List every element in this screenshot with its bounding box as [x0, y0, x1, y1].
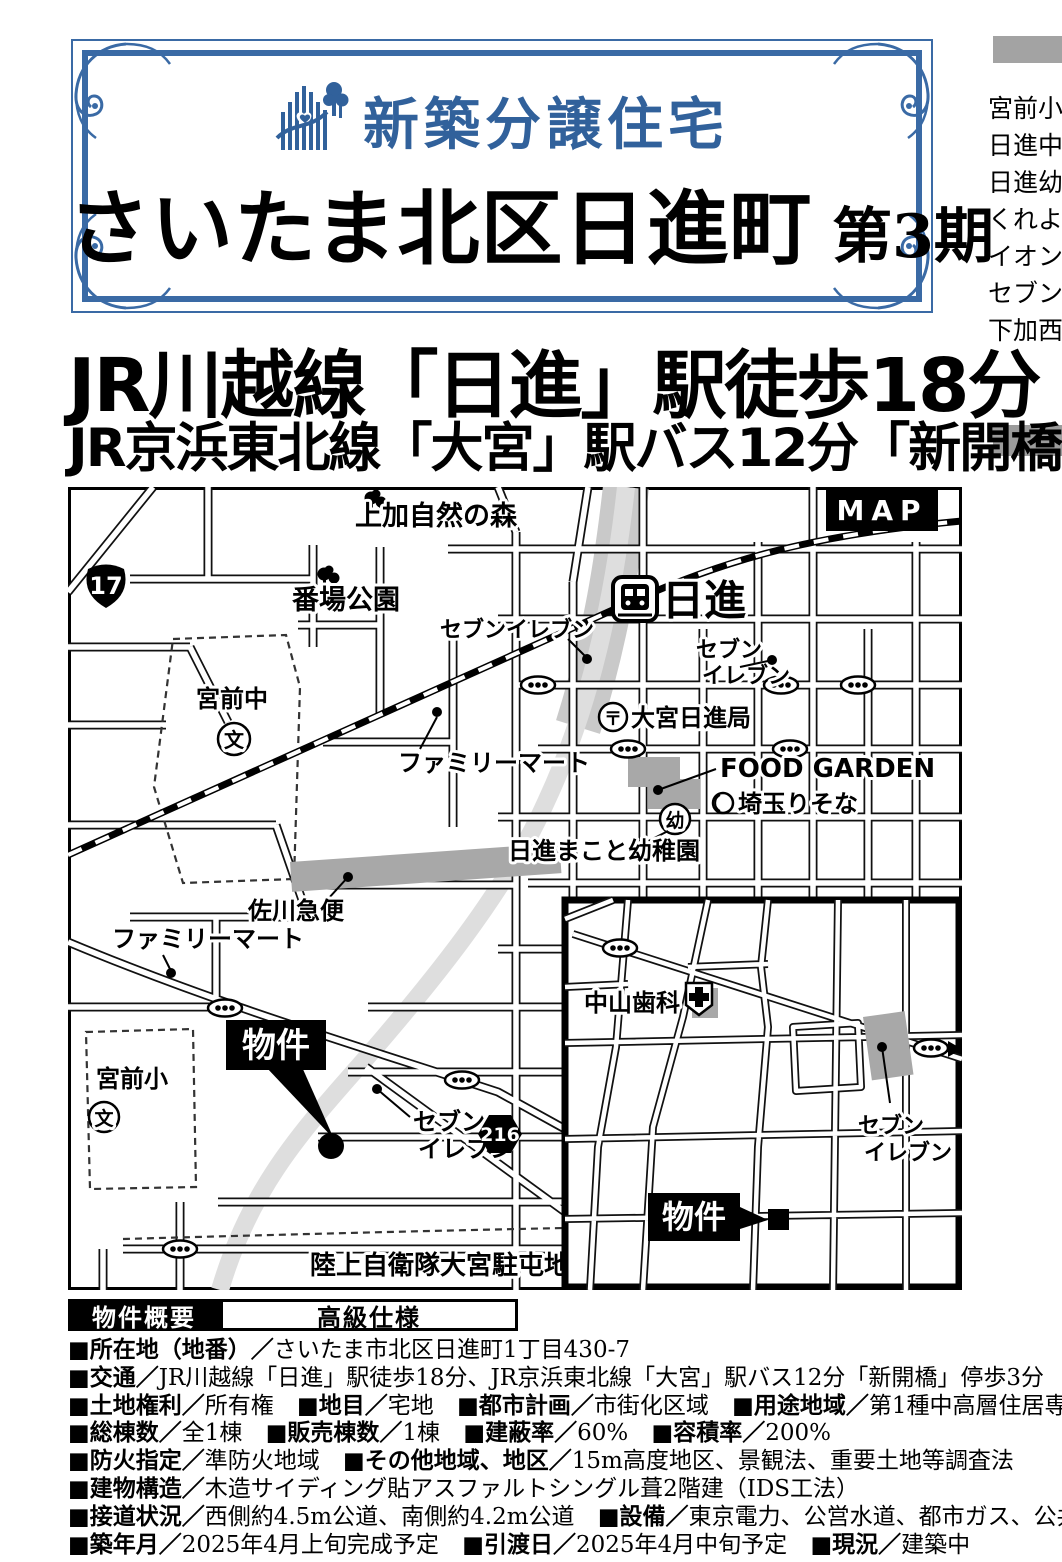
post-office-label: 大宮日進局	[631, 704, 751, 732]
svg-text:17: 17	[89, 572, 122, 600]
detail-value: さいたま市北区日進町1丁目430-7	[274, 1337, 630, 1363]
jsdf-base-label: 陸上自衛隊大宮駐屯地	[310, 1250, 570, 1281]
familymart-upper-dot	[432, 707, 442, 717]
seven-eleven-lower-label-1: セブン	[413, 1108, 485, 1136]
detail-value: 1棟	[402, 1420, 440, 1446]
detail-value: 建築中	[901, 1532, 970, 1558]
detail-label: ■設備／	[598, 1504, 689, 1530]
detail-label: ■防火指定／	[68, 1448, 205, 1474]
post-office-symbol: 〒	[599, 703, 627, 731]
detail-label: ■総棟数／	[68, 1420, 182, 1446]
map-banner: MAP	[826, 489, 938, 531]
detail-value: 2025年4月中旬予定	[576, 1532, 787, 1558]
makoto-kindergarten-label: 日進まこと幼稚園	[508, 837, 700, 865]
detail-row: ■総棟数／全1棟 ■販売棟数／1棟 ■建蔽率／60% ■容積率／200%	[68, 1420, 1062, 1448]
detail-label: ■接道状況／	[68, 1504, 205, 1530]
svg-text:216: 216	[480, 1124, 520, 1146]
nisshin-station-label: 日進	[662, 576, 746, 625]
detail-label: ■都市計画／	[457, 1393, 594, 1419]
detail-value: JR川越線「日進」駅徒歩18分、JR京浜東北線「大宮」駅バス12分「新開橋」停歩…	[159, 1365, 1044, 1391]
detail-value: 所有権	[205, 1393, 274, 1419]
main-title: さいたま北区日進町 第3期	[68, 162, 936, 281]
seven-eleven-upper-dot	[582, 654, 592, 664]
food-garden-label: FOOD GARDEN	[720, 754, 935, 784]
kamika-forest-label: 上加自然の森	[355, 500, 518, 532]
familymart-upper-label: ファミリーマート	[398, 749, 590, 777]
detail-label: ■交通／	[68, 1365, 159, 1391]
detail-label: ■容積率／	[652, 1420, 766, 1446]
banba-park-label: 番場公園	[292, 585, 400, 616]
brand-label: 新築分譲住宅	[363, 80, 729, 161]
nakayama-dental-label: 中山歯科	[584, 989, 680, 1017]
brand-row: 新築分譲住宅	[68, 76, 936, 164]
svg-text:幼: 幼	[665, 809, 684, 832]
seven-eleven-station-label-2: イレブン	[702, 663, 790, 689]
property-details: ■所在地（地番）／さいたま市北区日進町1丁目430-7 ■交通／JR川越線「日進…	[68, 1337, 1062, 1559]
detail-label: ■築年月／	[68, 1532, 182, 1558]
svg-text:MAP: MAP	[836, 494, 927, 527]
access-map: 上加自然の森 番場公園 17 宮前中 文 セブンイレブン 日進 セブン イレブン	[68, 487, 962, 1290]
detail-value: 第1種中高層住居専用地域	[869, 1393, 1062, 1419]
school-symbol: 文	[218, 723, 250, 755]
seven-eleven-inset-label-2: イレブン	[864, 1140, 952, 1166]
detail-label: ■建蔽率／	[463, 1420, 577, 1446]
bus-stop-icon	[603, 940, 637, 957]
seven-eleven-inset-label-1: セブン	[858, 1113, 924, 1139]
detail-row: ■防火指定／準防火地域 ■その他地域、地区／15m高度地区、景観法、重要土地等調…	[68, 1448, 1062, 1476]
seven-eleven-station-label-1: セブン	[696, 637, 762, 663]
poi-line: セブン	[988, 275, 1062, 312]
familymart-lower-dot	[166, 968, 176, 978]
miyamae-es-label: 宮前小	[96, 1065, 168, 1093]
detail-value: 準防火地域	[205, 1448, 320, 1474]
detail-value: 木造サイディング貼アスファルトシングル葺2階建（IDS工法）	[205, 1476, 859, 1502]
detail-value: 200%	[765, 1420, 831, 1446]
detail-row: ■建物構造／木造サイディング貼アスファルトシングル葺2階建（IDS工法）	[68, 1476, 1062, 1504]
seven-eleven-station-dot	[767, 655, 777, 665]
bus-stop-icon	[841, 677, 875, 694]
bus-stop-icon	[611, 741, 645, 758]
detail-value: 市街化区域	[594, 1393, 709, 1419]
nisshin-station-icon	[613, 577, 657, 621]
risona-bank-label: 埼玉りそな	[738, 790, 858, 818]
inset-map: 中山歯科 セブン イレブン 物件	[565, 900, 962, 1290]
flyer-page: 宮前小 日進中 日進幼 くれよん イオン セブン 下加西	[0, 0, 1062, 1562]
detail-row: ■所在地（地番）／さいたま市北区日進町1丁目430-7	[68, 1337, 1062, 1365]
svg-text:物件: 物件	[662, 1198, 726, 1236]
detail-value: 2025年4月上旬完成予定	[182, 1532, 439, 1558]
detail-label: ■現況／	[810, 1532, 901, 1558]
svg-text:文: 文	[224, 728, 245, 752]
right-strip-poi-list: 宮前小 日進中 日進幼 くれよん イオン セブン 下加西	[988, 90, 1062, 349]
detail-value: 西側約4.5m公道、南側約4.2m公道	[205, 1504, 575, 1530]
poi-line: 宮前小	[988, 90, 1062, 127]
poi-line: くれよん	[988, 201, 1062, 238]
poi-line: 日進中	[988, 127, 1062, 164]
detail-label: ■用途地域／	[732, 1393, 869, 1419]
seven-eleven-upper-label: セブンイレブン	[440, 617, 594, 643]
detail-value: 15m高度地区、景観法、重要土地等調査法	[572, 1448, 1014, 1474]
bus-stop-icon	[521, 677, 555, 694]
bus-stop-icon	[914, 1040, 948, 1057]
detail-value: 全1棟	[182, 1420, 243, 1446]
svg-text:物件: 物件	[242, 1026, 310, 1066]
detail-label: ■引渡日／	[462, 1532, 576, 1558]
detail-value: 東京電力、公営水道、都市ガス、公共下水	[689, 1504, 1062, 1530]
bus-stop-icon	[163, 1241, 197, 1258]
detail-value: 60%	[577, 1420, 628, 1446]
svg-text:文: 文	[94, 1107, 114, 1130]
detail-label: ■土地権利／	[68, 1393, 205, 1419]
bus-stop-icon	[445, 1072, 479, 1089]
detail-label: ■所在地（地番）／	[68, 1337, 274, 1363]
detail-row: ■築年月／2025年4月上旬完成予定 ■引渡日／2025年4月中旬予定 ■現況／…	[68, 1532, 1062, 1560]
detail-label: ■建物構造／	[68, 1476, 205, 1502]
detail-row: ■接道状況／西側約4.5m公道、南側約4.2m公道 ■設備／東京電力、公営水道、…	[68, 1504, 1062, 1532]
bus-stop-icon	[208, 1000, 242, 1017]
headline-access-2: JR京浜東北線「大宮」駅バス12分「新開橋」停歩3分	[68, 406, 962, 482]
detail-row: ■交通／JR川越線「日進」駅徒歩18分、JR京浜東北線「大宮」駅バス12分「新開…	[68, 1365, 1062, 1393]
detail-label: ■販売棟数／	[266, 1420, 403, 1446]
house-fence-trees-logo-icon	[275, 76, 349, 164]
kindergarten-symbol: 幼	[660, 804, 690, 834]
detail-row: ■土地権利／所有権 ■地目／宅地 ■都市計画／市街化区域 ■用途地域／第1種中高…	[68, 1393, 1062, 1421]
title-suffix: 第3期	[832, 202, 994, 272]
right-strip-bar-top	[993, 36, 1062, 63]
poi-line: 日進幼	[988, 164, 1062, 201]
detail-value: 宅地	[388, 1393, 434, 1419]
premium-spec-tab: 高級仕様	[220, 1299, 518, 1331]
familymart-lower-label: ファミリーマート	[112, 925, 304, 953]
detail-label: ■その他地域、地区／	[343, 1448, 572, 1474]
svg-text:〒: 〒	[604, 709, 622, 730]
title-text: さいたま北区日進町	[68, 181, 813, 277]
overview-header-bar: 物件概要 高級仕様	[68, 1299, 518, 1331]
school-symbol: 文	[89, 1102, 119, 1132]
bank-symbol	[713, 793, 733, 813]
overview-title-tab: 物件概要	[68, 1299, 220, 1331]
miyamae-jhs-label: 宮前中	[196, 685, 268, 713]
sagawa-label: 佐川急便	[247, 897, 345, 925]
detail-label: ■地目／	[297, 1393, 388, 1419]
seven-eleven-inset-building	[863, 1011, 913, 1080]
poi-line: イオン	[988, 238, 1062, 275]
